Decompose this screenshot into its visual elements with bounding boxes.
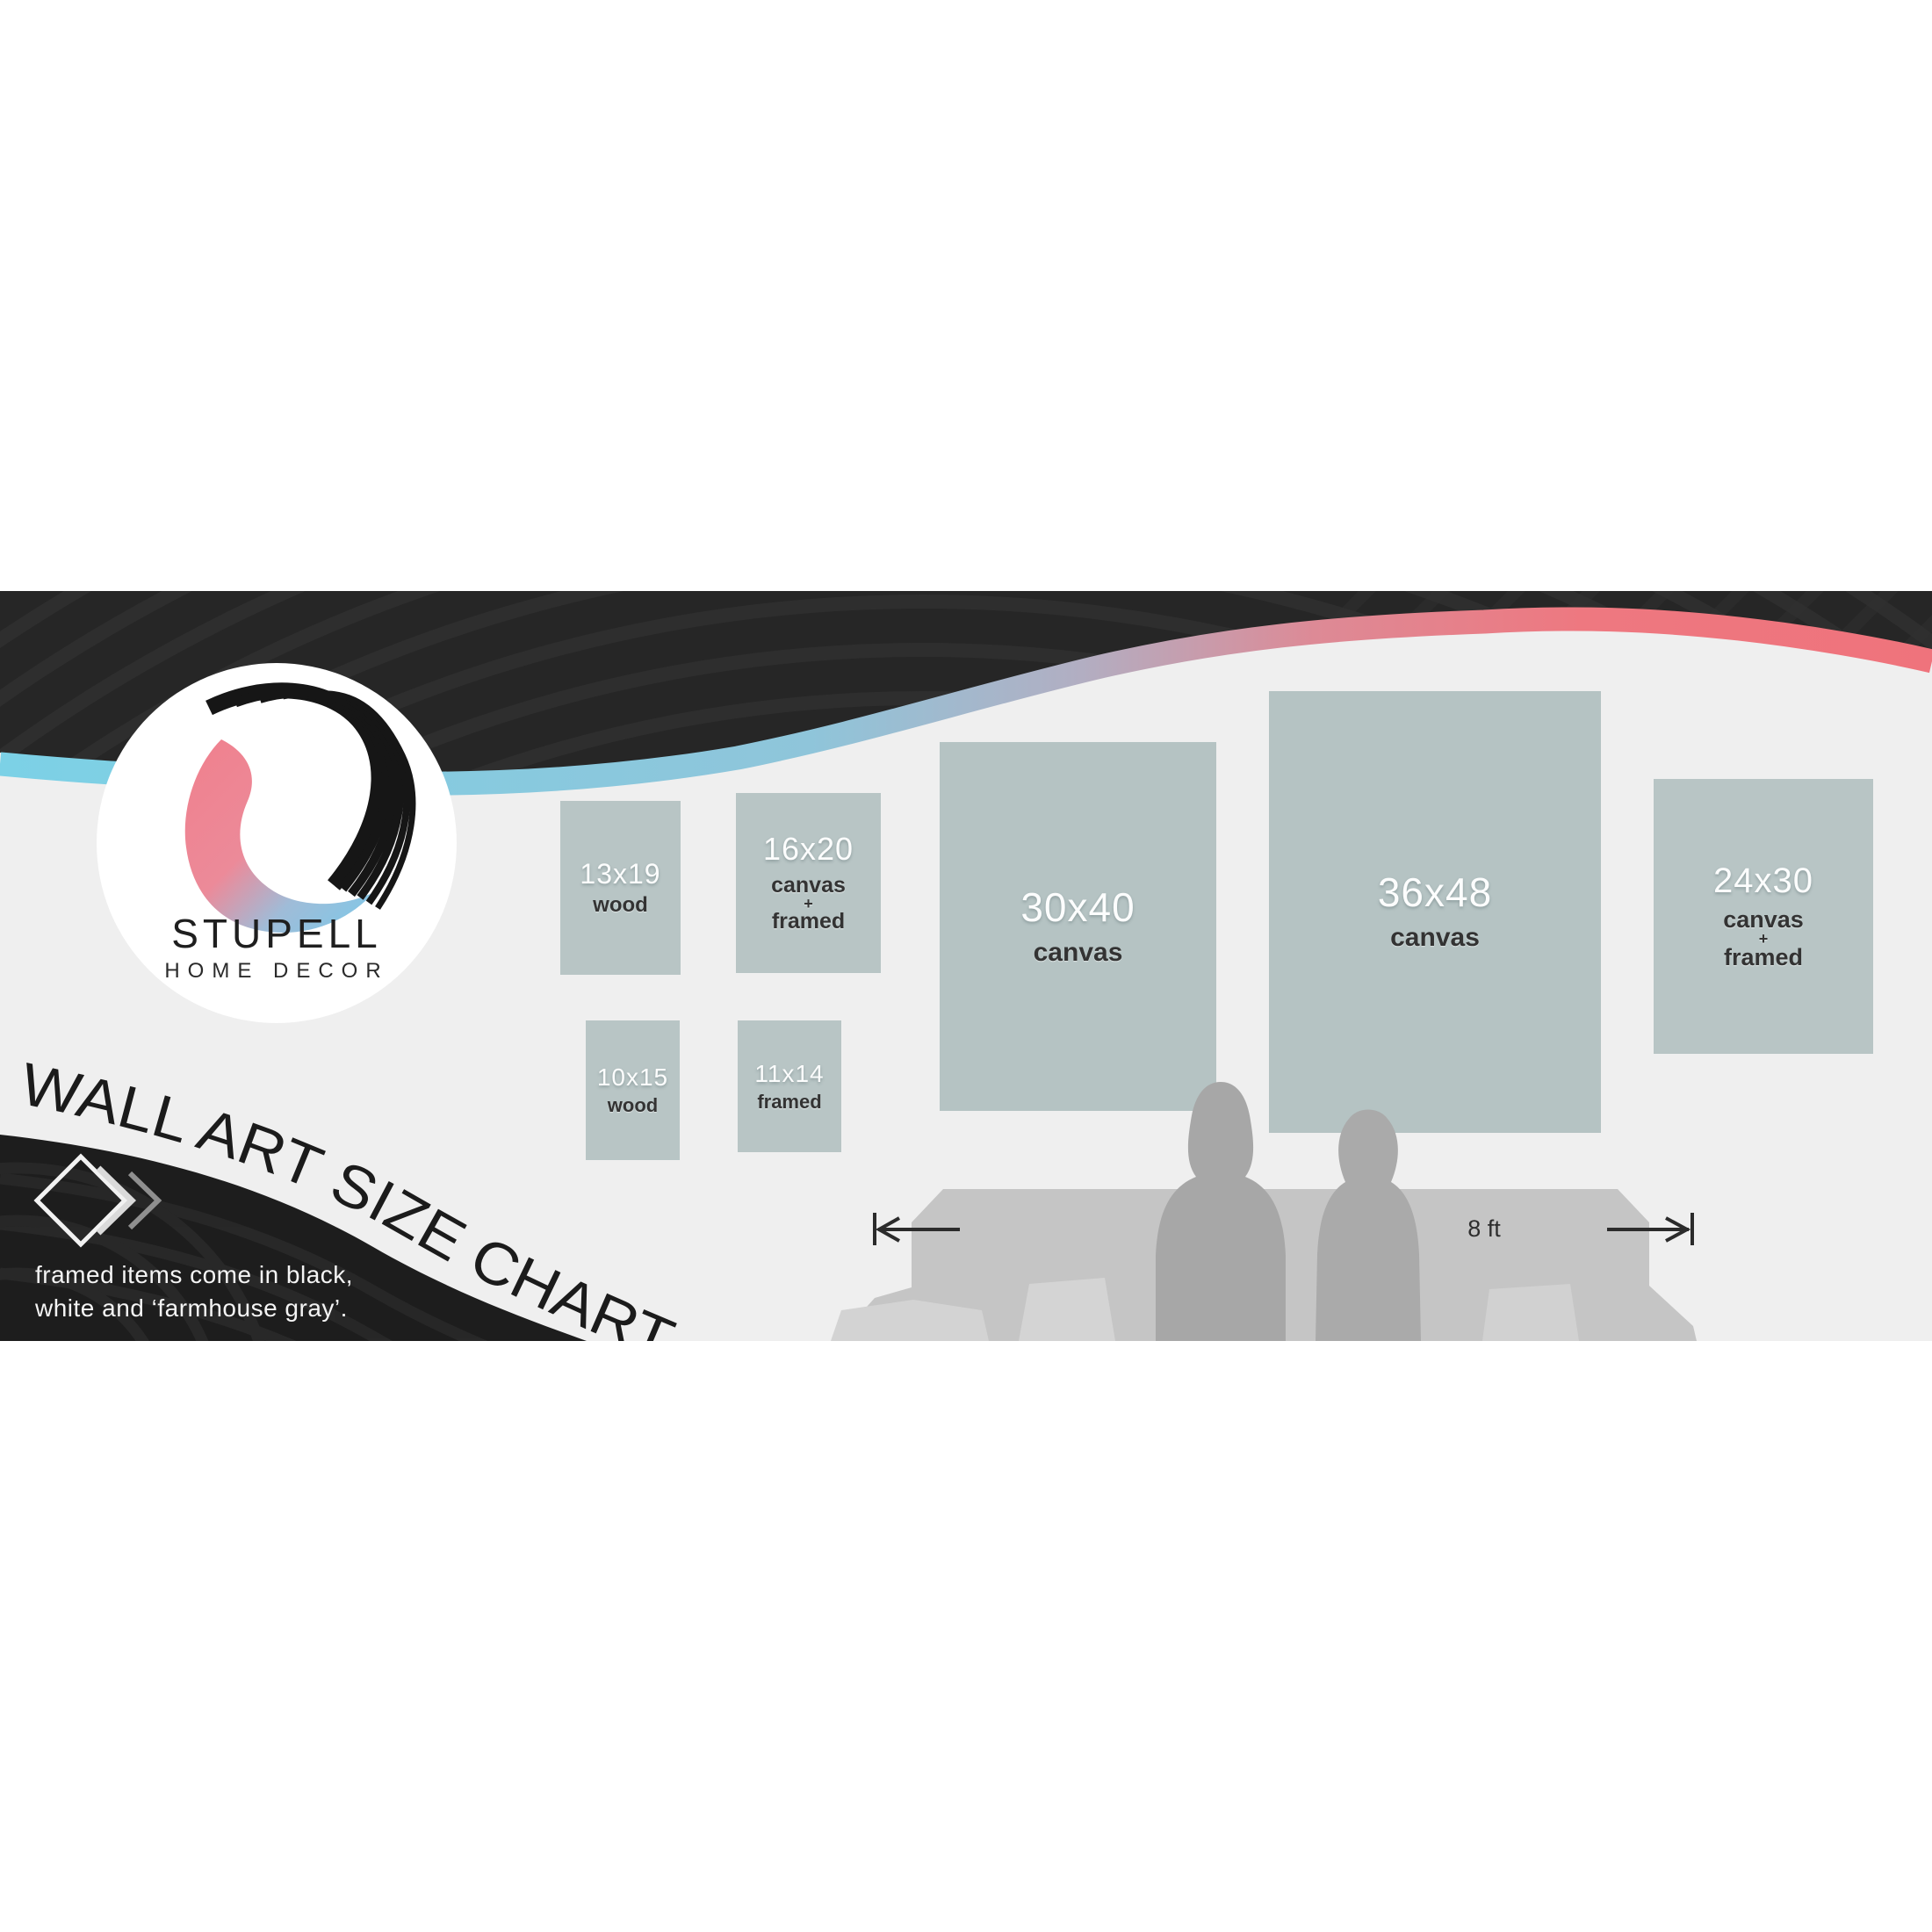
panel-label-11x14: 11x14 framed	[738, 1020, 841, 1152]
brand-name: STUPELL	[136, 910, 417, 957]
panel-size-text: 13x19	[580, 859, 660, 890]
panel-material-text: canvas	[1723, 907, 1804, 933]
panel-material-text: canvas	[1034, 939, 1123, 967]
panel-plus-text: +	[804, 898, 813, 910]
panel-label-30x40: 30x40 canvas	[940, 742, 1216, 1111]
panel-label-24x30: 24x30 canvas + framed	[1654, 779, 1873, 1054]
panel-label-10x15: 10x15 wood	[586, 1020, 680, 1160]
woman-silhouette	[1316, 1110, 1421, 1342]
panel-size-text: 30x40	[1020, 886, 1135, 930]
brand-tagline: HOME DECOR	[136, 959, 417, 984]
framing-note-line1: framed items come in black,	[35, 1261, 353, 1289]
panel-material-text: canvas	[1390, 924, 1480, 952]
man-silhouette	[1156, 1082, 1286, 1341]
panel-label-36x48: 36x48 canvas	[1269, 691, 1601, 1133]
panel-material-text: wood	[593, 894, 648, 917]
panel-size-text: 24x30	[1713, 862, 1813, 900]
panel-material-text: wood	[608, 1095, 658, 1116]
panel-size-text: 16x20	[763, 833, 854, 867]
panel-extra-text: framed	[1724, 945, 1803, 970]
panel-extra-text: framed	[772, 910, 845, 934]
panel-plus-text: +	[1759, 933, 1769, 945]
panel-size-text: 11x14	[754, 1061, 824, 1087]
panel-size-text: 36x48	[1378, 871, 1492, 915]
room-width-label: 8 ft	[1423, 1215, 1546, 1243]
panel-material-text: framed	[757, 1092, 821, 1113]
wall-art-size-chart-page: WALL ART SIZE CHART STUPELL HOME DECOR f…	[0, 0, 1932, 1932]
framing-note-line2: white and ‘farmhouse gray’.	[35, 1294, 348, 1323]
panel-size-text: 10x15	[597, 1064, 668, 1091]
panel-label-16x20: 16x20 canvas + framed	[736, 793, 881, 973]
panel-label-13x19: 13x19 wood	[560, 801, 681, 975]
panel-material-text: canvas	[771, 874, 846, 898]
